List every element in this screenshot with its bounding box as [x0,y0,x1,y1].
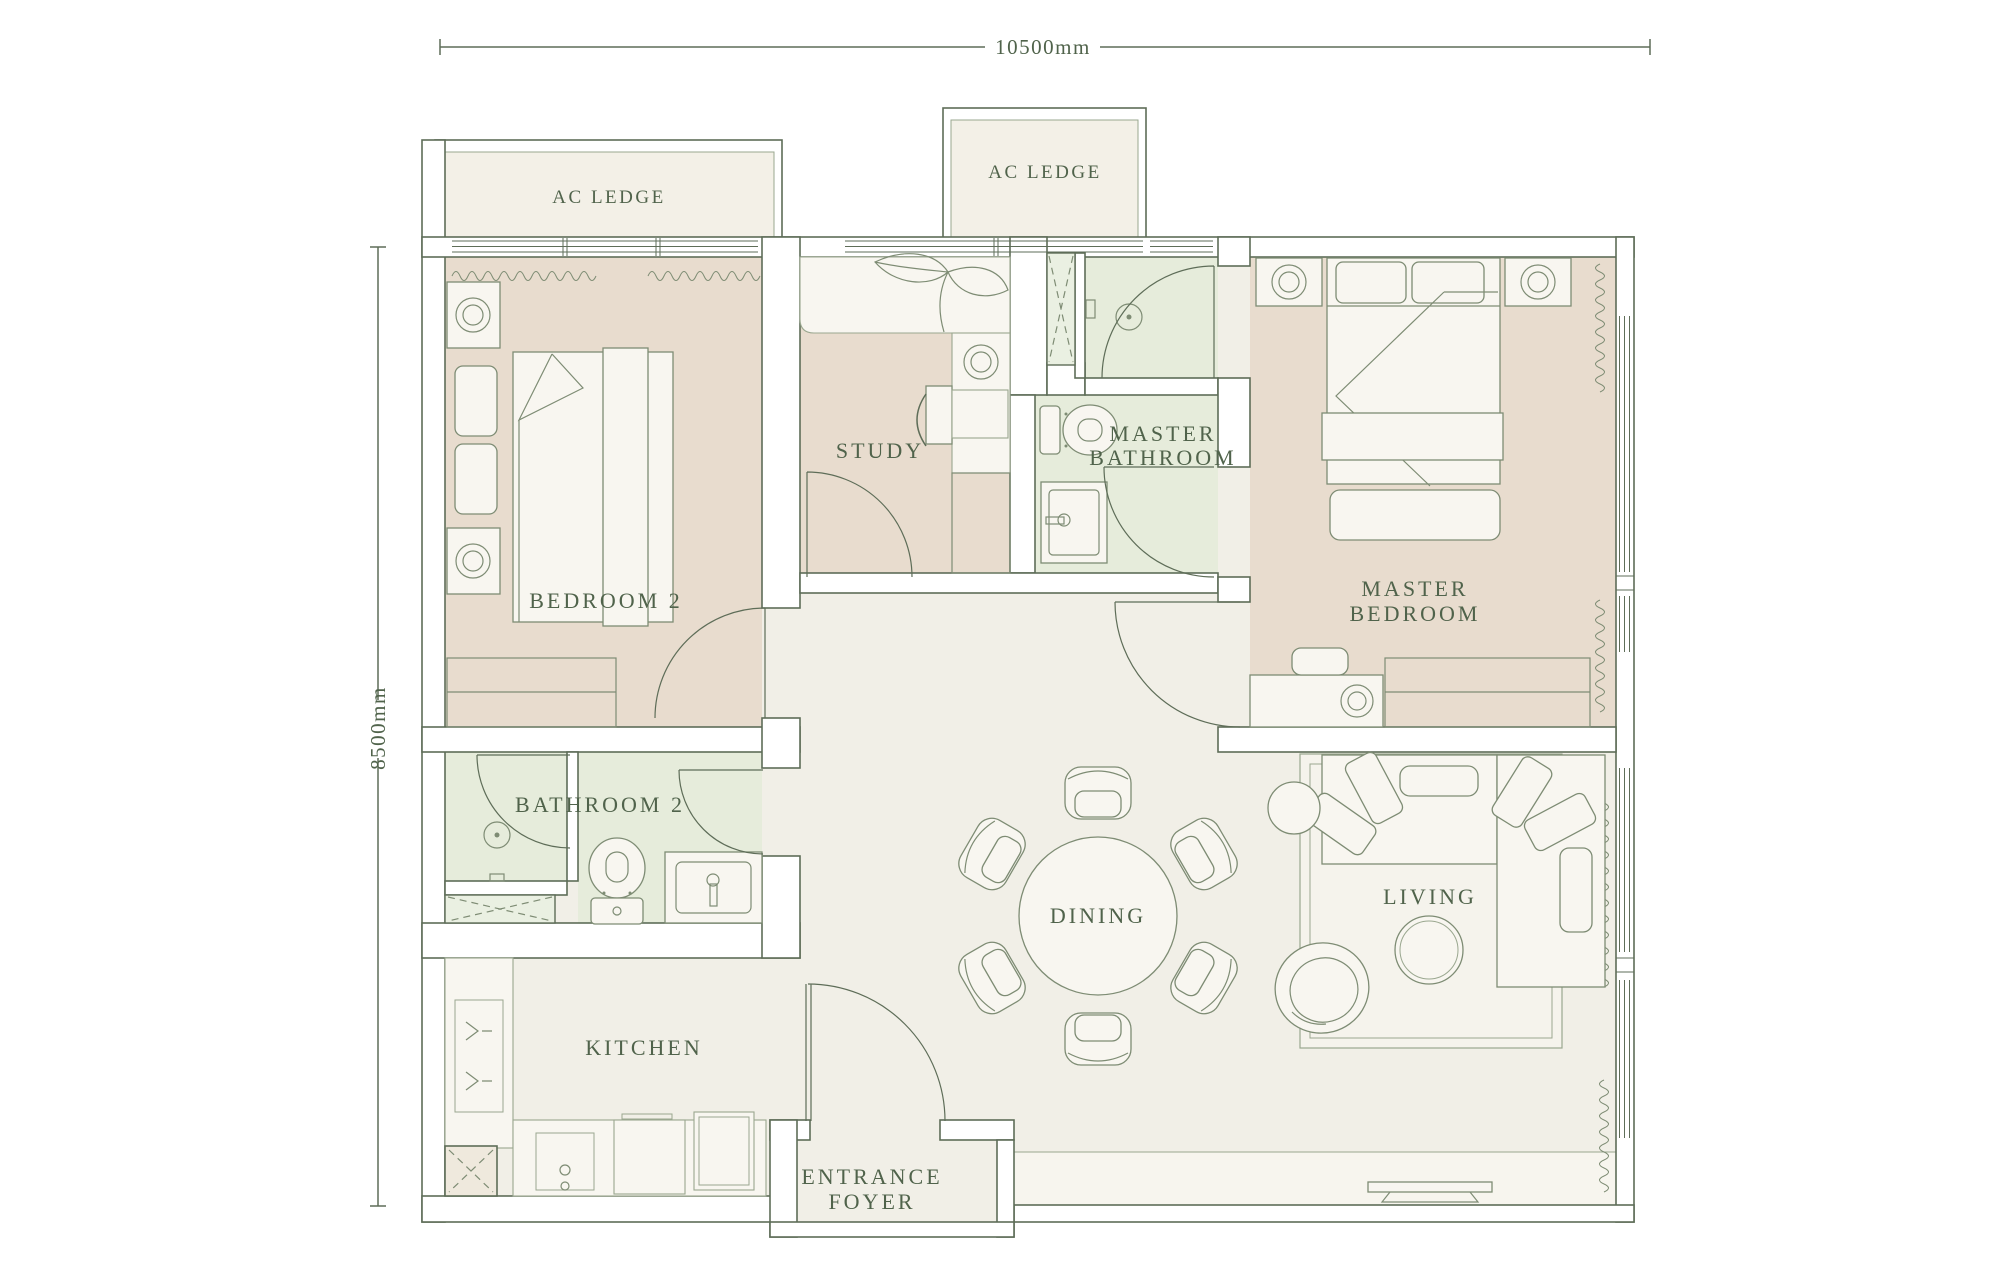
sink-icon [1041,482,1107,563]
floor-plan-page: 10500mm 8500mm AC LEDGE AC LEDGE [0,0,2001,1276]
sink-icon [665,852,762,923]
desk-icon [917,386,1008,446]
dining-chair [1065,767,1131,819]
master-bathroom-shower-floor [1085,257,1218,378]
dimension-left-label: 8500mm [366,686,390,770]
living-label: LIVING [1383,884,1477,909]
master-bathroom-label-line2: BATHROOM [1089,445,1236,470]
oven-icon [614,1114,685,1194]
nightstand [447,528,500,594]
bay-window-ledge [1014,1152,1616,1205]
side-table-icon [1268,782,1320,834]
bathroom2-label: BATHROOM 2 [515,792,685,817]
chair-icon [1292,648,1348,675]
dimension-top-label: 10500mm [995,35,1091,59]
dining-label: DINING [1050,903,1146,928]
ac-ledge-mid: AC LEDGE [943,108,1146,240]
toilet-icon [589,838,645,924]
master-bedroom-label-line2: BEDROOM [1349,601,1480,626]
bed-icon [1322,258,1503,540]
dimension-left: 8500mm [366,247,390,1206]
master-bedroom-label-line1: MASTER [1361,576,1468,601]
ac-ledge-left: AC LEDGE [435,140,782,240]
kitchen-label: KITCHEN [585,1035,703,1060]
ac-ledge-mid-label: AC LEDGE [988,162,1101,183]
entrance-foyer-label-line2: FOYER [828,1189,915,1214]
ac-ledge-left-label: AC LEDGE [552,187,665,208]
dining-chair [1065,1013,1131,1065]
bedroom2-label: BEDROOM 2 [529,588,683,613]
study-label: STUDY [836,438,924,463]
coffee-table-icon [1395,916,1463,984]
bench-icon [1330,490,1500,540]
master-bathroom-label-line1: MASTER [1109,421,1216,446]
dimension-top: 10500mm [440,35,1650,59]
fridge-icon [694,1112,754,1190]
nightstand [447,282,500,348]
floor-plan-canvas: 10500mm 8500mm AC LEDGE AC LEDGE [0,0,2001,1276]
entrance-foyer-label-line1: ENTRANCE [801,1164,942,1189]
